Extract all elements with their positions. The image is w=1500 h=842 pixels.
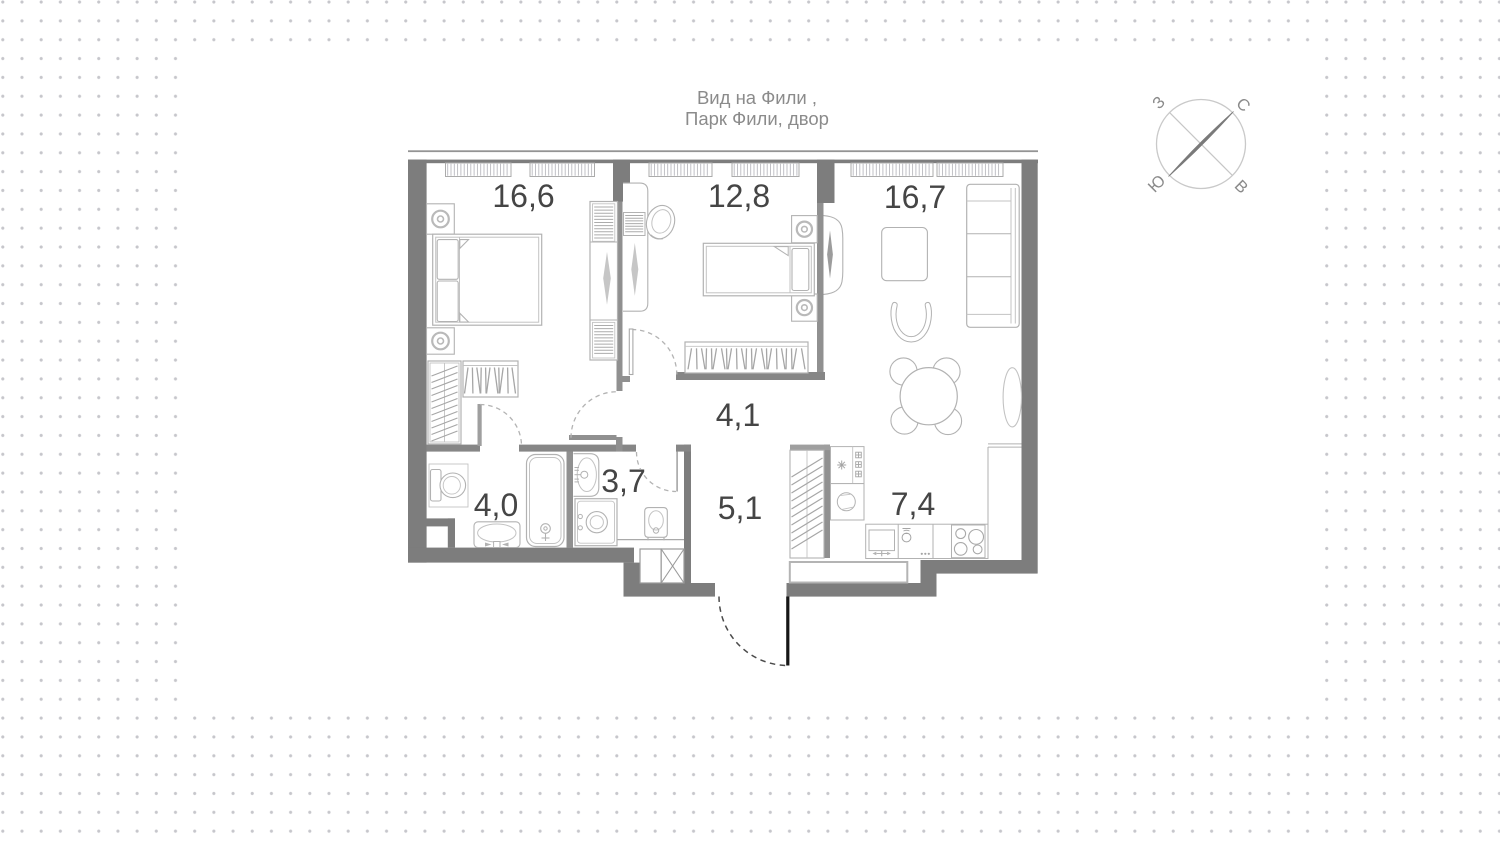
svg-text:12,8: 12,8: [708, 178, 770, 214]
svg-text:5,1: 5,1: [718, 490, 762, 526]
svg-text:7,4: 7,4: [891, 486, 935, 522]
svg-text:16,6: 16,6: [492, 178, 554, 214]
svg-text:Парк Фили, двор: Парк Фили, двор: [685, 108, 829, 129]
svg-text:3,7: 3,7: [601, 463, 645, 499]
svg-text:С: С: [1232, 94, 1253, 115]
svg-text:Ю: Ю: [1145, 172, 1170, 197]
svg-text:4,1: 4,1: [716, 397, 760, 433]
svg-text:16,7: 16,7: [884, 179, 946, 215]
svg-text:4,0: 4,0: [474, 487, 518, 523]
svg-text:З: З: [1149, 93, 1169, 113]
svg-text:В: В: [1231, 177, 1252, 198]
svg-text:Вид на Фили ,: Вид на Фили ,: [697, 87, 817, 108]
